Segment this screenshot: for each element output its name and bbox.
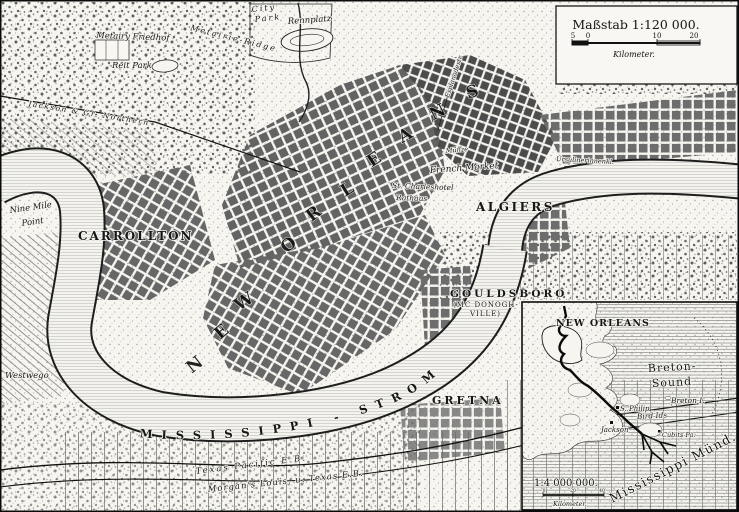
label-inset-new-orleans: NEW ORLEANS — [556, 318, 650, 329]
map-canvas: MISSISSIPPI - STROM Maßstab 1:120 000. 5… — [0, 0, 739, 512]
label-breton-island: Breton I. — [670, 396, 705, 405]
label-cubits-pass: Cubits Pa. — [662, 431, 695, 439]
label-rathaus: Rathaus — [395, 193, 428, 203]
historical-map-new-orleans: MISSISSIPPI - STROM Maßstab 1:120 000. 5… — [0, 0, 739, 512]
scale-box: Maßstab 1:120 000. 5 0 10 20 Kilometer. — [556, 6, 737, 84]
metairie-cemetery — [95, 40, 129, 60]
label-bird-islands: Bird Ids — [636, 410, 668, 421]
scale-tick-5: 5 — [571, 32, 575, 40]
label-gouldsboro-2: (MC DONOGH- — [453, 301, 519, 309]
label-breton-sound-2: Sound — [651, 375, 692, 390]
scale-tick-10: 10 — [653, 32, 662, 40]
inset-scale-ratio: 1:4 000 000. — [534, 478, 598, 489]
gretna-grid — [400, 398, 505, 462]
label-breton-sound-1: Breton- — [647, 359, 696, 375]
label-algiers: ALGIERS — [475, 200, 555, 214]
label-carrollton: CARROLLTON — [78, 229, 194, 243]
label-gouldsboro-3: VILLE) — [469, 310, 501, 318]
label-fort-jackson: Jackson — [599, 426, 629, 434]
scale-tick-20: 20 — [690, 32, 699, 40]
label-gretna: GRETNA — [432, 394, 504, 407]
label-reit-park: Reit Park — [111, 61, 152, 71]
label-westwego: Westwego — [5, 371, 49, 381]
scale-unit: Kilometer. — [612, 50, 655, 59]
inset-scale-unit: Kilometer. — [552, 500, 587, 508]
scale-title: Maßstab 1:120 000. — [572, 17, 699, 32]
label-gouldsboro-1: GOULDSBORO — [450, 288, 567, 300]
scale-tick-0: 0 — [586, 32, 590, 40]
